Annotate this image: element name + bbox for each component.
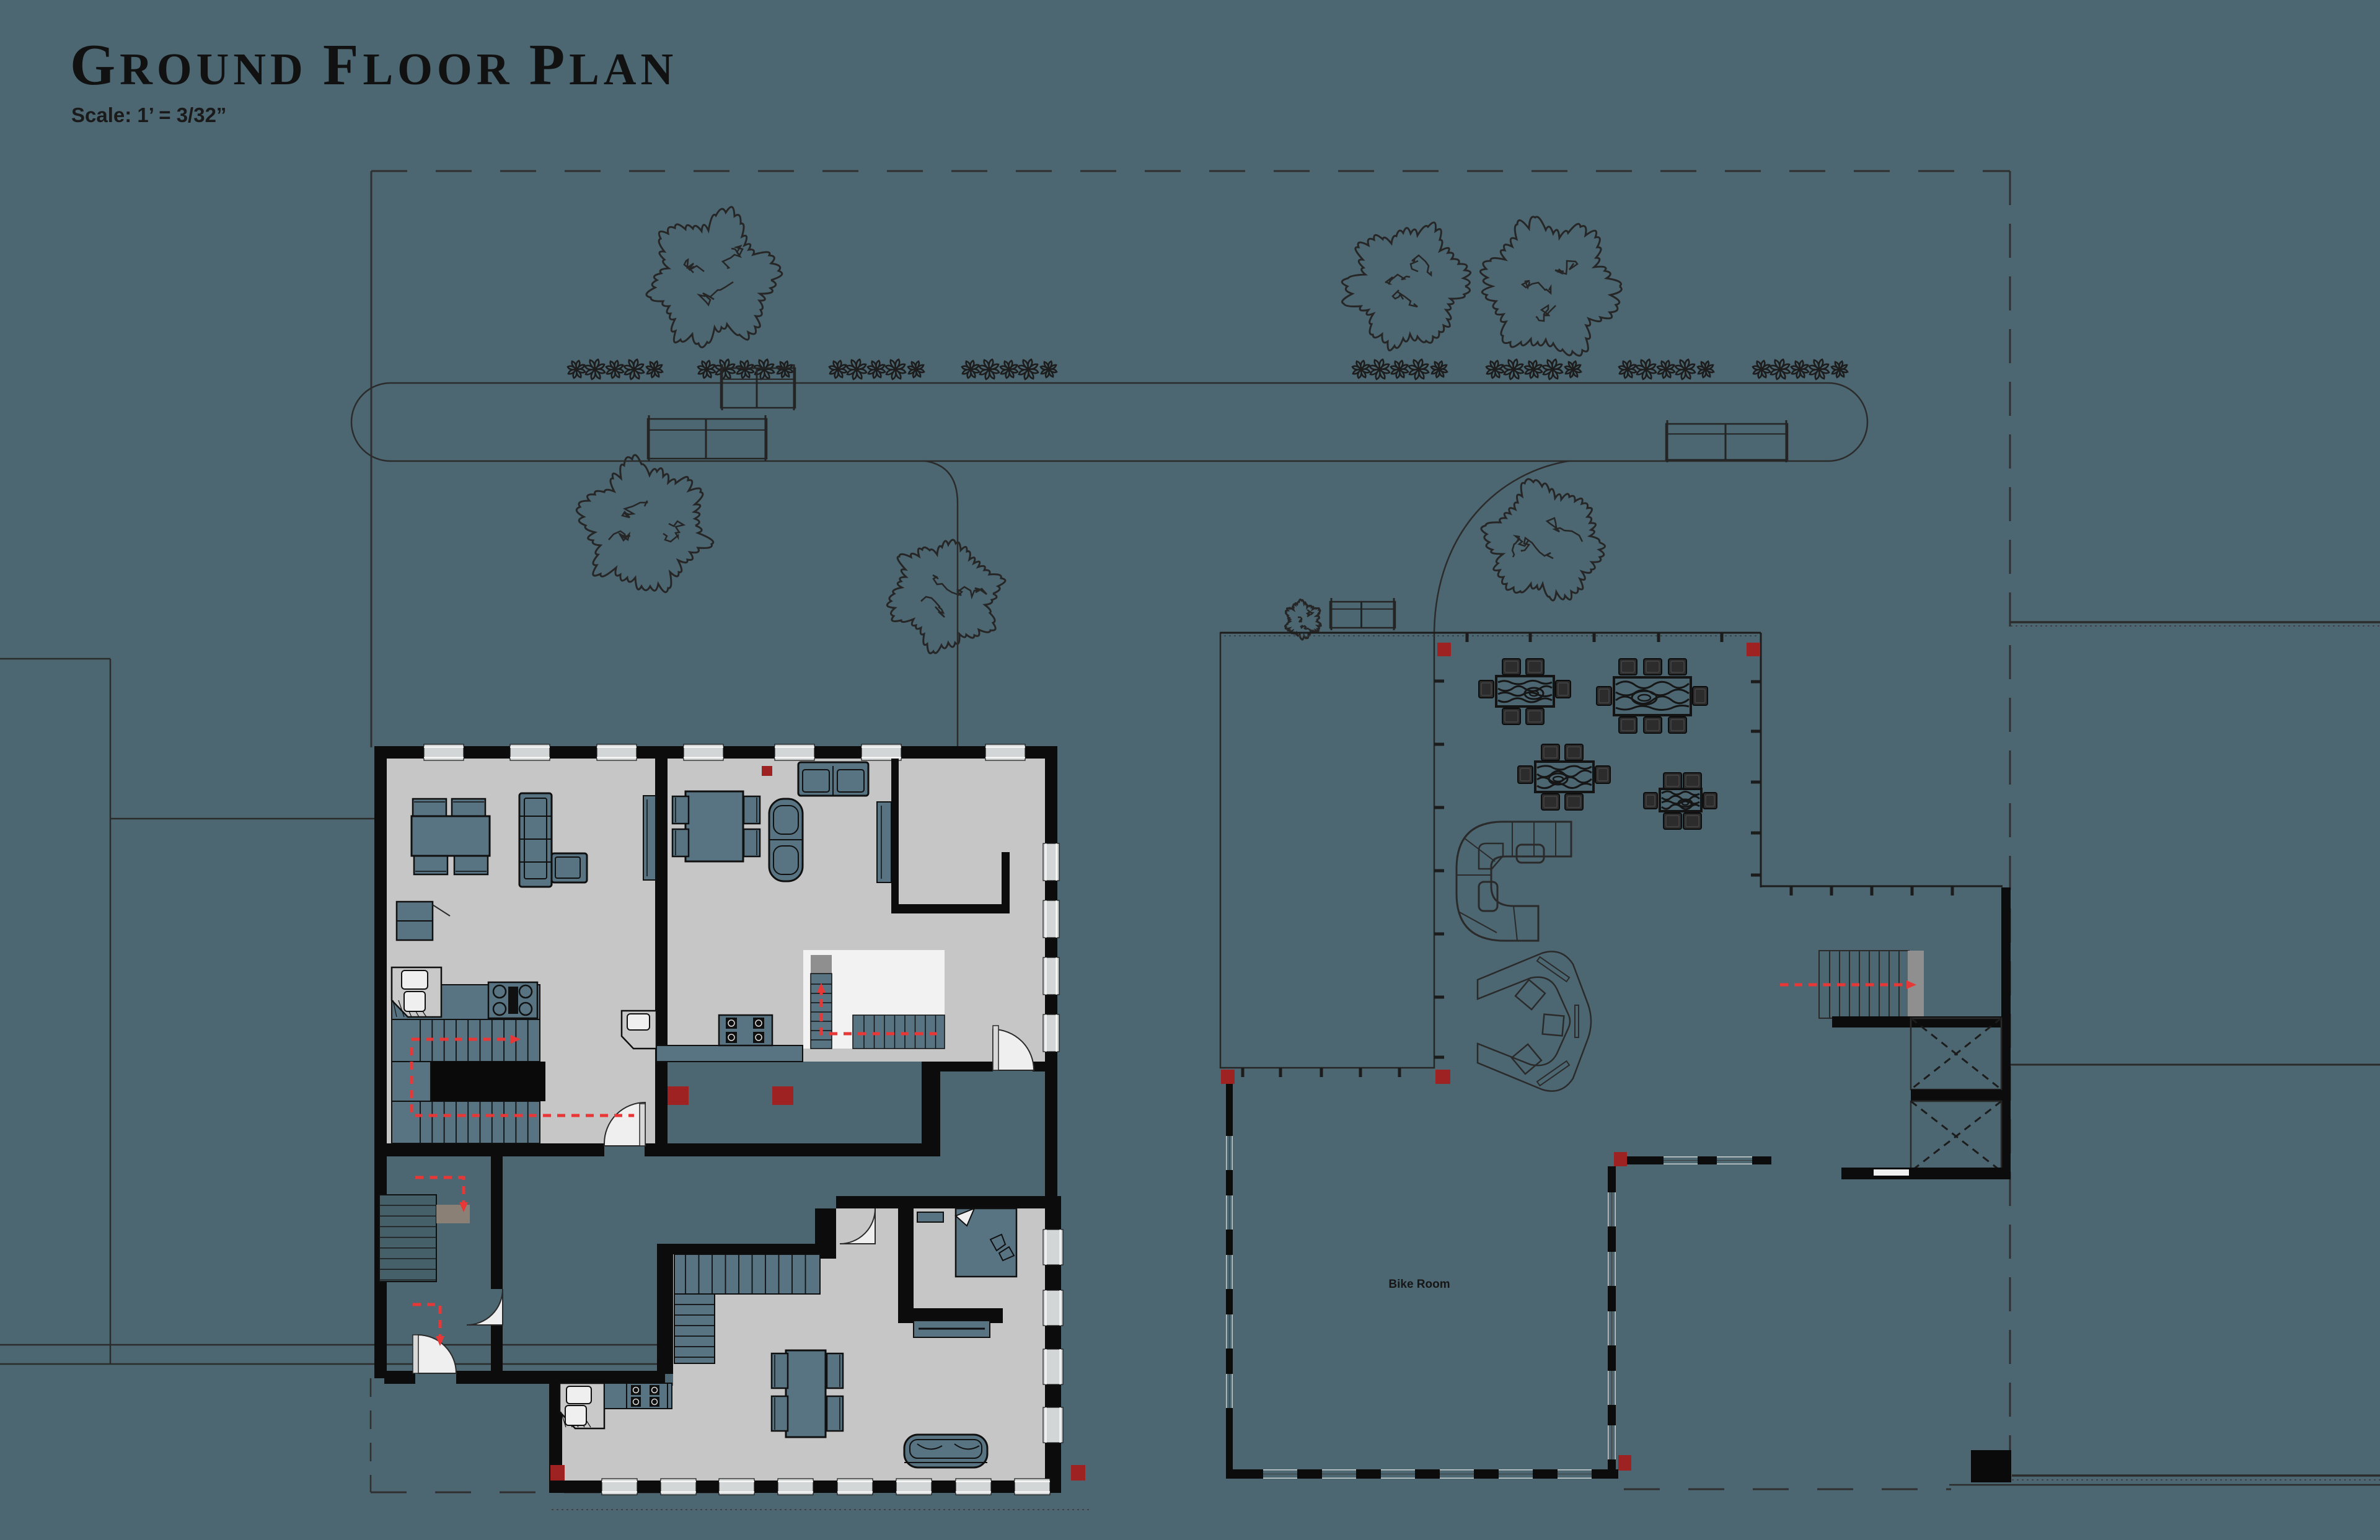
svg-text:Bike Room: Bike Room: [1388, 1278, 1450, 1291]
svg-text:Scale: 1’ = 3/32”: Scale: 1’ = 3/32”: [71, 103, 226, 126]
